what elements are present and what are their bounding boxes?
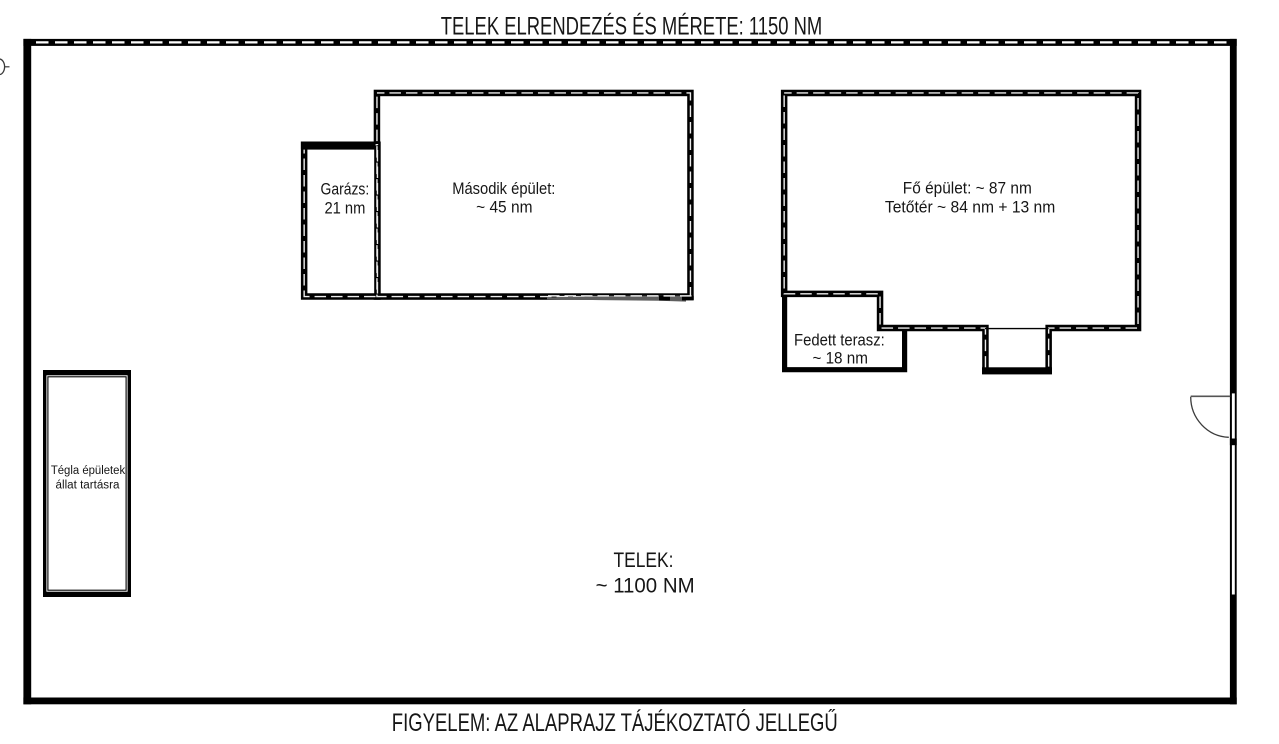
- svg-text:állat tartásra: állat tartásra: [56, 479, 121, 491]
- svg-text:~ 18 nm: ~ 18 nm: [812, 348, 868, 367]
- svg-text:Tetőtér ~ 84 nm + 13 nm: Tetőtér ~ 84 nm + 13 nm: [885, 198, 1055, 217]
- svg-text:Garázs:: Garázs:: [321, 180, 370, 199]
- svg-text:Tégla épületek: Tégla épületek: [51, 465, 126, 477]
- svg-text:Második épület:: Második épület:: [452, 179, 555, 198]
- svg-text:FIGYELEM: AZ ALAPRAJZ TÁJÉKOZT: FIGYELEM: AZ ALAPRAJZ TÁJÉKOZTATÓ JELLEG…: [392, 708, 838, 737]
- svg-text:TELEK:: TELEK:: [614, 549, 674, 572]
- svg-text:Fedett terasz:: Fedett terasz:: [794, 330, 885, 349]
- svg-text:Fő épület: ~ 87 nm: Fő épület: ~ 87 nm: [903, 179, 1032, 198]
- svg-text:~ 1100 NM: ~ 1100 NM: [596, 574, 695, 597]
- svg-text:~ 45 nm: ~ 45 nm: [476, 198, 532, 217]
- svg-text:TELEK ELRENDEZÉS ÉS MÉRETE: 11: TELEK ELRENDEZÉS ÉS MÉRETE: 1150 NM: [441, 12, 823, 41]
- svg-text:21 nm: 21 nm: [324, 198, 365, 217]
